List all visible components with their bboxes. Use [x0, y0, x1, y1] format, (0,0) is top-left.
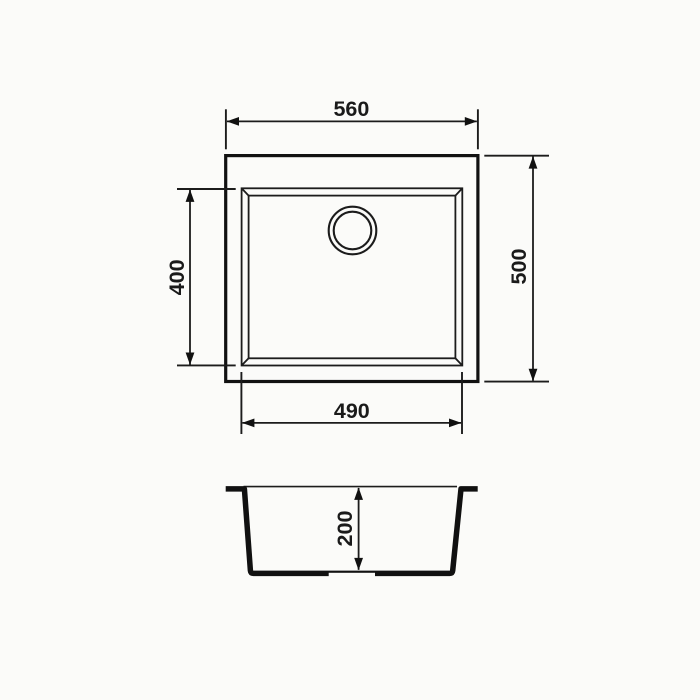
svg-text:490: 490 [334, 399, 370, 423]
svg-text:500: 500 [507, 249, 531, 285]
svg-text:560: 560 [333, 97, 369, 121]
svg-text:400: 400 [165, 259, 189, 295]
svg-text:200: 200 [333, 511, 357, 547]
